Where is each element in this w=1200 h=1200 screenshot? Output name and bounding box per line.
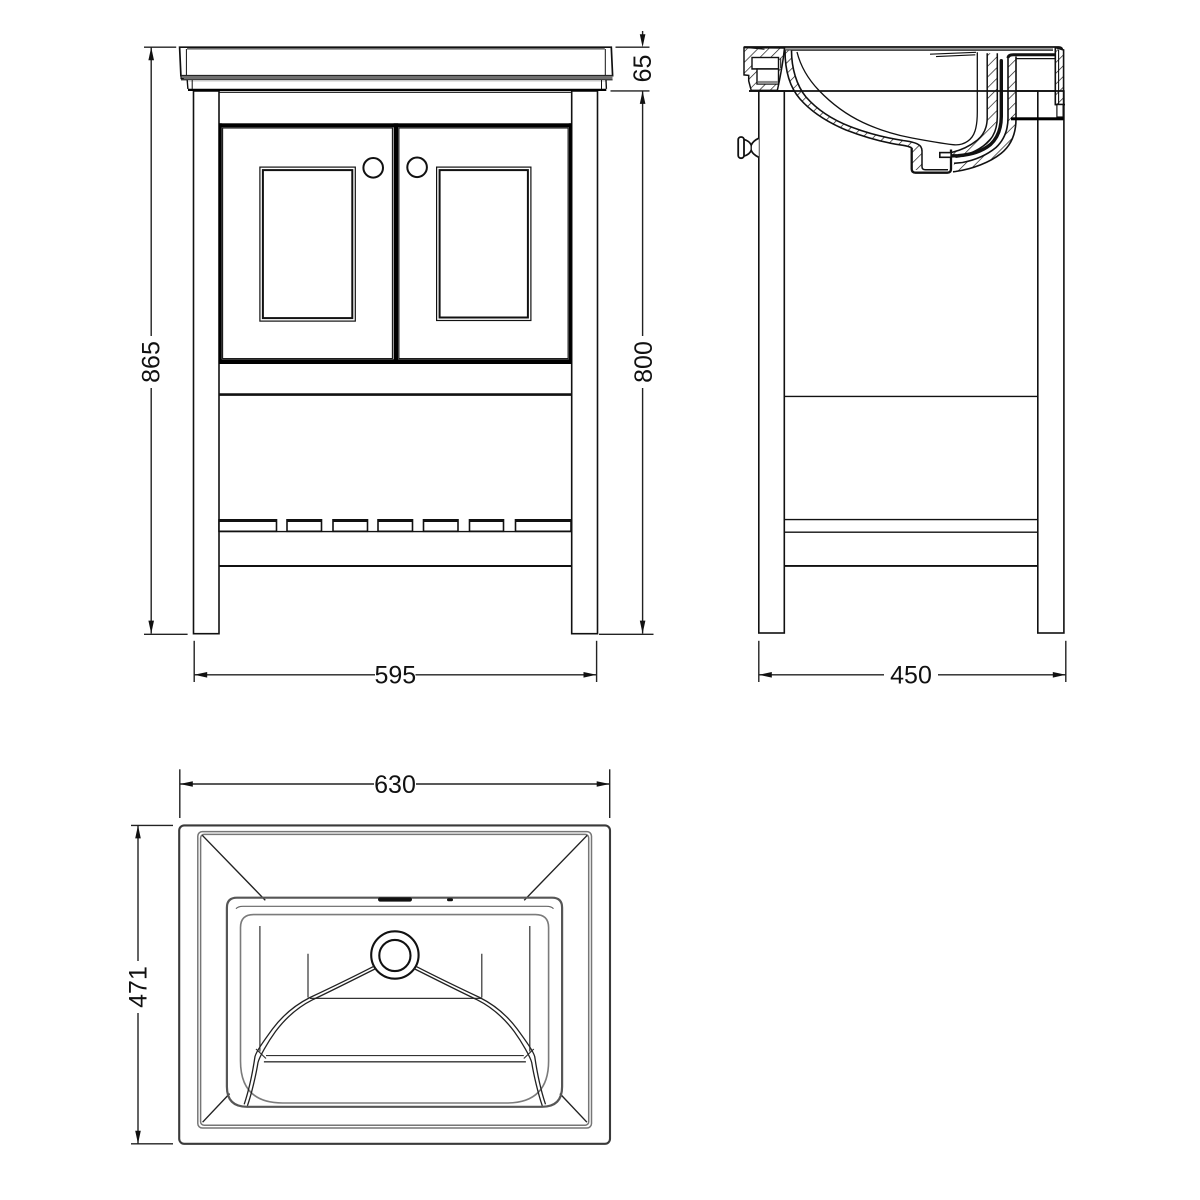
svg-text:800: 800 — [630, 341, 658, 383]
svg-text:630: 630 — [374, 771, 416, 799]
svg-text:65: 65 — [629, 55, 657, 83]
svg-text:595: 595 — [374, 662, 416, 690]
svg-text:471: 471 — [124, 966, 152, 1008]
svg-text:450: 450 — [890, 662, 932, 690]
svg-text:865: 865 — [138, 341, 166, 383]
